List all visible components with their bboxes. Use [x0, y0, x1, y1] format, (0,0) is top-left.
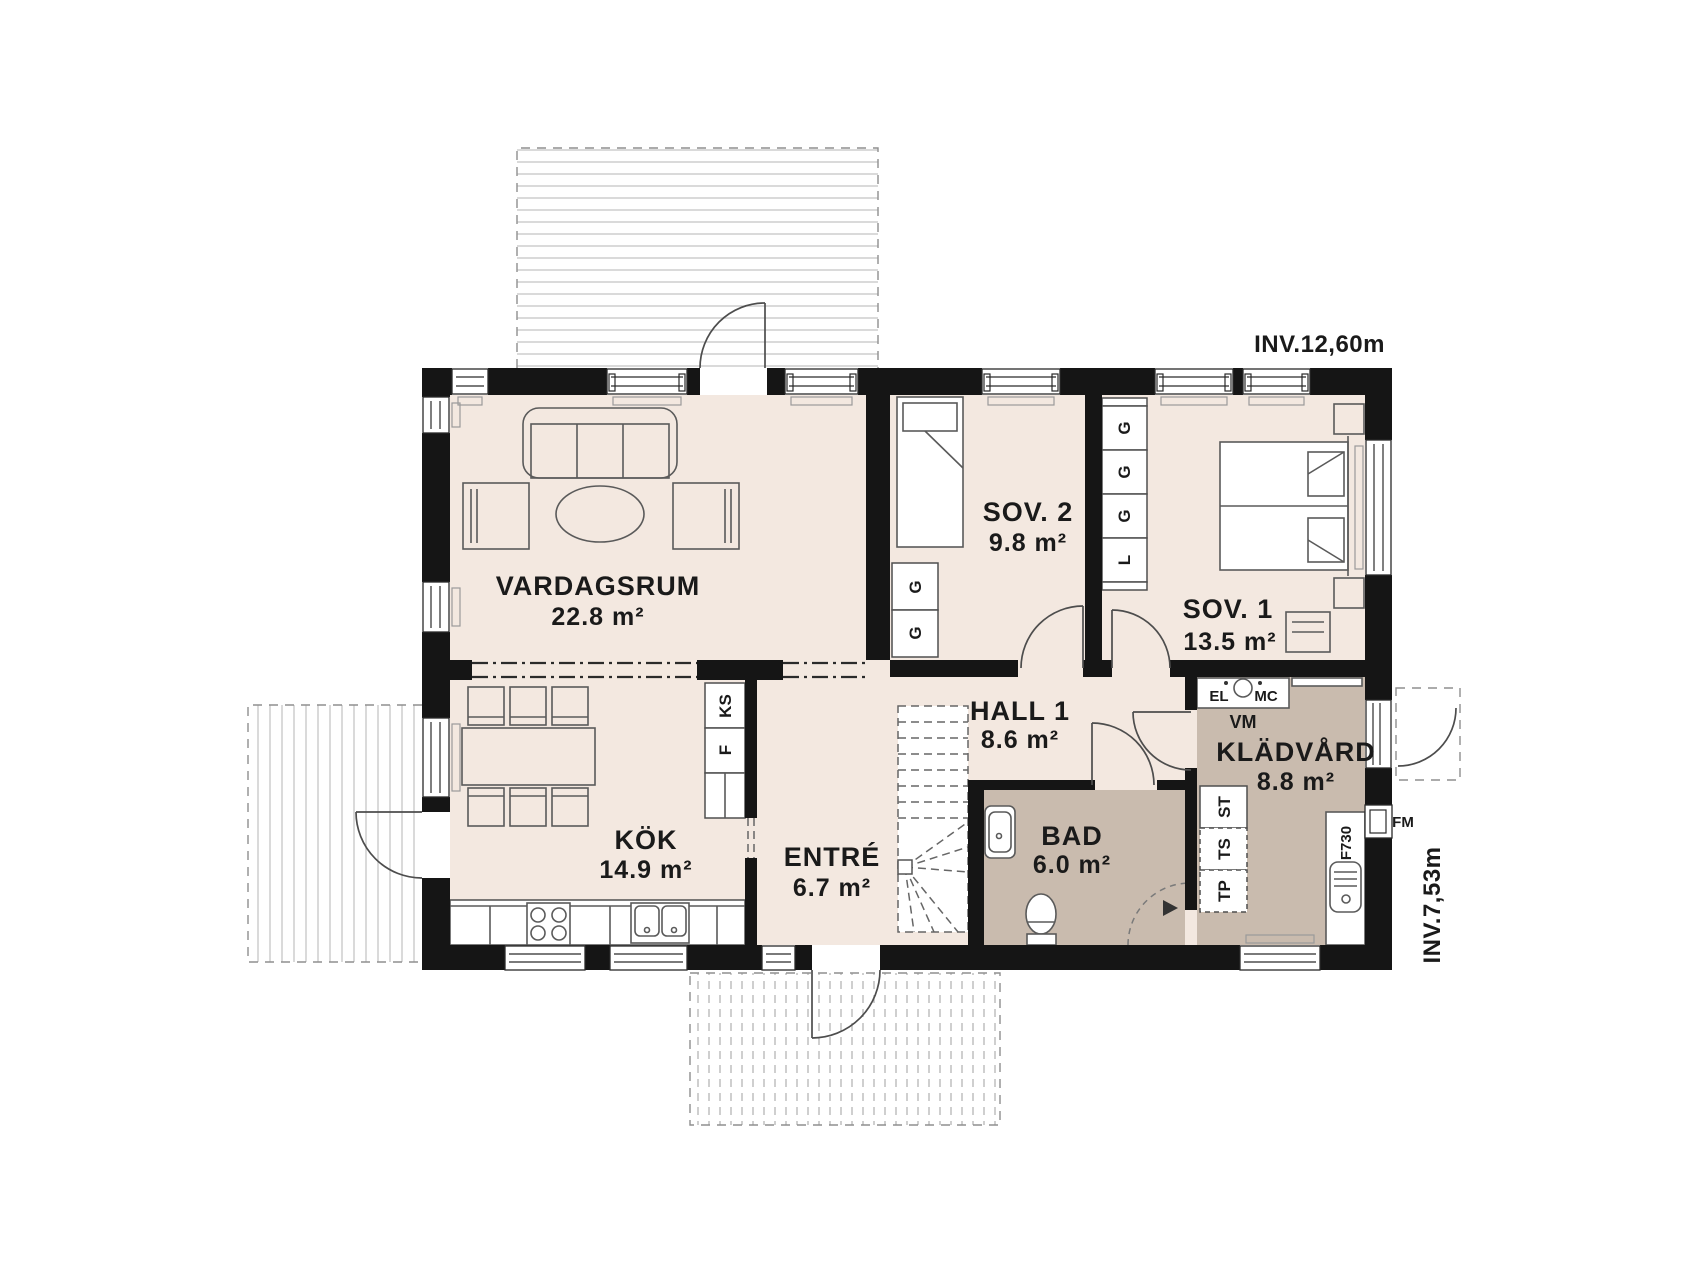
wardrobe-label: G — [906, 580, 925, 593]
double-bed — [1220, 436, 1348, 576]
laundry-cabinet-label: TP — [1215, 880, 1234, 902]
room-area-vardagsrum: 22.8 m² — [551, 603, 644, 631]
window — [607, 369, 687, 394]
wardrobe-label: G — [906, 626, 925, 639]
kitchen-counter — [450, 900, 745, 945]
room-label-bad: BAD — [1041, 821, 1103, 851]
window — [505, 946, 585, 970]
window — [785, 369, 858, 394]
window — [982, 369, 1060, 394]
room-area-bad: 6.0 m² — [1033, 851, 1111, 879]
room-label-kok: KÖK — [615, 825, 678, 855]
room-label-kladvard: KLÄDVÅRD — [1216, 736, 1376, 767]
window — [1366, 440, 1391, 575]
freezer-label: F — [716, 745, 735, 755]
fm-vent-niche — [1365, 805, 1392, 838]
window — [762, 946, 795, 970]
stair-newel-post — [898, 860, 912, 874]
room-area-sov1: 13.5 m² — [1183, 628, 1276, 656]
laundry-cabinet-label: TS — [1215, 838, 1234, 860]
room-label-entre: ENTRÉ — [784, 841, 881, 872]
left-deck — [248, 705, 422, 962]
room-area-entre: 6.7 m² — [793, 874, 871, 902]
stove — [527, 903, 570, 945]
room-area-sov2: 9.8 m² — [989, 529, 1067, 557]
single-bed — [897, 397, 963, 547]
wardrobe-label: G — [1115, 421, 1134, 434]
washer-label: VM — [1230, 712, 1257, 732]
bathroom-sink — [985, 806, 1015, 858]
dimension-height-label: INV.7,53m — [1419, 846, 1446, 963]
wardrobe-label: G — [1115, 509, 1134, 522]
room-label-sov2: SOV. 2 — [983, 497, 1074, 527]
top-deck — [517, 148, 878, 368]
window — [452, 369, 488, 394]
room-label-vardagsrum: VARDAGSRUM — [496, 571, 701, 601]
room-label-hall: HALL 1 — [970, 696, 1070, 726]
electrical-label: EL — [1209, 688, 1228, 705]
kladvard-shelf — [1292, 678, 1362, 686]
media-central-label: MC — [1254, 688, 1277, 705]
fresh-air-label: FM — [1392, 814, 1414, 831]
linen-cabinet-label: L — [1115, 555, 1134, 565]
bottom-porch — [690, 973, 1000, 1125]
dimension-width-label: INV.12,60m — [1254, 331, 1385, 358]
room-area-kok: 14.9 m² — [599, 856, 692, 884]
floor-plan-drawing: INV.12,60m INV.7,53m VARDAGSRUM 22.8 m² … — [0, 0, 1707, 1280]
exterior-door-right — [1366, 688, 1460, 780]
window — [423, 397, 449, 433]
room-label-sov1: SOV. 1 — [1183, 594, 1274, 624]
window — [1240, 946, 1320, 970]
window — [610, 946, 687, 970]
room-area-hall: 8.6 m² — [981, 726, 1059, 754]
window — [1243, 369, 1310, 394]
window — [423, 718, 449, 797]
fridge-label: KS — [716, 694, 735, 718]
kitchen-sink — [631, 903, 689, 943]
sink-unit-label: F730 — [1338, 826, 1355, 860]
laundry-cabinet-label: ST — [1215, 796, 1234, 818]
toilet — [1026, 894, 1056, 945]
wardrobe-label: G — [1115, 465, 1134, 478]
window — [423, 582, 449, 632]
room-area-kladvard: 8.8 m² — [1257, 768, 1335, 796]
window — [1155, 369, 1233, 394]
sov2-wardrobes — [892, 563, 938, 657]
floor-plan-page: INV.12,60m INV.7,53m VARDAGSRUM 22.8 m² … — [0, 0, 1707, 1280]
stair-void — [898, 706, 968, 932]
